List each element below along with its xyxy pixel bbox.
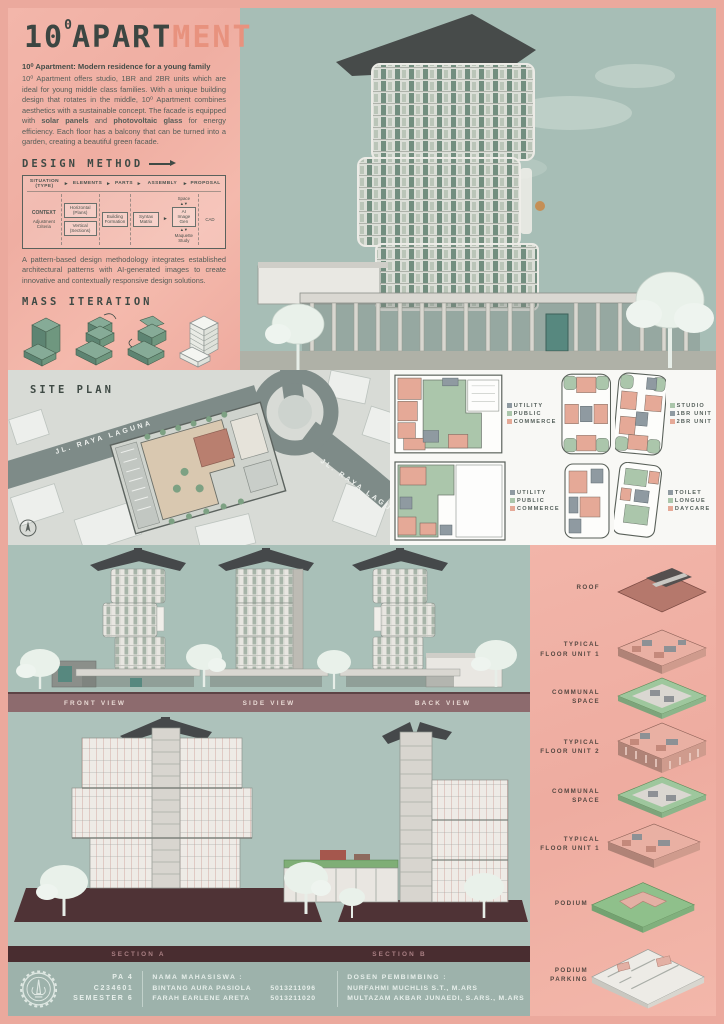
legend-item: DAYCARE <box>668 506 711 512</box>
legend-swatch <box>670 419 675 424</box>
elevations-panel: FRONT VIEW SIDE VIEW BACK VIEW <box>8 545 530 712</box>
its-logo <box>20 969 57 1009</box>
legend-item: UTILITY <box>507 403 557 409</box>
title-dark-part: APART <box>72 20 172 55</box>
legend-item: COMMERCE <box>507 419 557 425</box>
course-code: C234601 <box>66 984 133 995</box>
flow-context: CONTEXT <box>29 210 59 216</box>
title-accent-part: MENT <box>172 20 252 55</box>
flow-header-proposal: PROPOSAL <box>190 181 221 186</box>
legend-swatch <box>507 403 512 408</box>
flow-vertical: Vertical (Sections) <box>64 221 97 236</box>
section-label-a: SECTION A <box>8 946 269 962</box>
legend-swatch <box>670 411 675 416</box>
advisors-heading: DOSEN PEMBIMBING : <box>347 973 530 984</box>
legend-zoning-2: UTILITY PUBLIC COMMERCE <box>510 490 560 512</box>
axon-row-tfu1: TYPICAL FLOOR UNIT 1 <box>536 625 712 674</box>
legend-item: UTILITY <box>510 490 560 496</box>
mass-iteration-diagrams <box>22 313 224 370</box>
arrow-icon <box>149 163 171 165</box>
presentation-board: 100APARTMENT <box>0 0 724 1024</box>
floor-plans-panel: UTILITY PUBLIC COMMERCE <box>390 370 716 545</box>
student-row: FARAH EARLENE ARETA 5013211020 <box>152 994 328 1005</box>
intro-panel: 10⁰ Apartment: Modern residence for a yo… <box>8 8 240 370</box>
flow-adjustment: Adjustment Criteria <box>29 219 59 229</box>
legend-item: LONGUE <box>668 498 711 504</box>
axon-roof-illustration <box>612 560 712 616</box>
page-title: 100APARTMENT <box>24 18 253 55</box>
axon-row-roof: ROOF <box>536 551 712 625</box>
title-degree: 0 <box>64 18 72 33</box>
mass-iteration-heading: MASS ITERATION <box>22 296 226 308</box>
elevation-label-side: SIDE VIEW <box>182 694 356 712</box>
student-name: FARAH EARLENE ARETA <box>152 994 270 1005</box>
arrow-right-icon: ► <box>183 181 188 187</box>
exploded-axon-panel: ROOF TYPICAL FLOOR UNIT 1 COMMUNAL SPACE <box>530 545 716 1016</box>
legend-swatch <box>668 506 673 511</box>
elevation-drawings <box>8 545 530 694</box>
student-row: BINTANG AURA PASIOLA 5013211096 <box>152 984 328 995</box>
footer-bar: PA 4 C234601 SEMESTER 6 NAMA MAHASISWA :… <box>8 962 530 1016</box>
course-name: PA 4 <box>66 973 133 984</box>
section-drawings <box>8 712 530 946</box>
advisors-block: DOSEN PEMBIMBING : NURFAHMI MUCHLIS S.T.… <box>347 973 530 1005</box>
flow-header-assembly: ASSEMBLY <box>144 181 181 186</box>
flow-building-formation: Building Formation <box>102 212 129 227</box>
axon-row-parking: PODIUM PARKING <box>536 939 712 1012</box>
design-method-heading: DESIGN METHOD <box>22 158 226 170</box>
floor-plan-podium-1 <box>394 373 503 455</box>
legend-item: STUDIO <box>670 403 712 409</box>
site-plan-map: JL. RAYA LAGUNA JL. RAYA LAGUNA <box>8 370 390 545</box>
floor-plan-unit-2 <box>614 462 664 540</box>
intro-bold-solar: solar panels <box>41 116 88 125</box>
student-id: 5013211020 <box>270 994 328 1005</box>
legend-swatch <box>510 506 515 511</box>
legend-units: STUDIO 1BR UNIT 2BR UNIT <box>670 403 712 425</box>
axon-row-podium: PODIUM <box>536 869 712 939</box>
section-label-bar: SECTION A SECTION B <box>8 946 530 962</box>
student-name: BINTANG AURA PASIOLA <box>152 984 270 995</box>
advisor-name: MULTAZAM AKBAR JUNAEDI, S.ARS., M.ARS <box>347 994 530 1005</box>
axon-podium-illustration <box>588 873 698 935</box>
site-plan-heading: SITE PLAN <box>30 384 114 396</box>
axon-row-communal2: COMMUNAL SPACE <box>536 773 712 820</box>
legend-swatch <box>507 411 512 416</box>
render-illustration <box>240 8 716 370</box>
legend-amenity: TOILET LONGUE DAYCARE <box>668 490 711 512</box>
title-number: 10 <box>24 20 64 55</box>
student-id: 5013211096 <box>270 984 328 995</box>
design-method-flowchart: SITUATION (TYPE)► ELEMENTS► PARTS► ASSEM… <box>22 175 226 249</box>
arrow-up-down-icon: ▲▼ <box>180 202 188 206</box>
elevation-label-back: BACK VIEW <box>356 694 530 712</box>
legend-swatch <box>670 403 675 408</box>
arrow-right-icon: ► <box>64 181 69 187</box>
section-label-b: SECTION B <box>269 946 530 962</box>
floor-plan-tower-1 <box>561 372 611 456</box>
axon-row-tfu2: TYPICAL FLOOR UNIT 2 <box>536 721 712 773</box>
intro-seg2: and <box>89 116 114 125</box>
divider <box>142 971 143 1007</box>
intro-bold-glass: photovoltaic glass <box>113 116 182 125</box>
legend-swatch <box>507 419 512 424</box>
divider <box>337 971 338 1007</box>
building-render <box>240 8 716 370</box>
flow-horizontal: Horizontal (Plans) <box>64 203 97 218</box>
sections-panel: SECTION A SECTION B <box>8 712 530 962</box>
axon-communal-illustration <box>612 674 712 720</box>
elevation-label-front: FRONT VIEW <box>8 694 182 712</box>
floor-plan-podium-2 <box>394 461 506 541</box>
arrow-up-down-icon: ▲▼ <box>180 228 188 232</box>
intro-paragraph: 10⁰ Apartment offers studio, 1BR and 2BR… <box>22 74 226 148</box>
legend-item: PUBLIC <box>507 411 557 417</box>
axon-row-communal1: COMMUNAL SPACE <box>536 674 712 721</box>
students-block: NAMA MAHASISWA : BINTANG AURA PASIOLA 50… <box>152 973 328 1005</box>
axon-floor-illustration <box>612 721 712 773</box>
legend-swatch <box>668 490 673 495</box>
flow-cad: CAD <box>201 217 219 222</box>
site-plan-panel: SITE PLAN JL. RAYA LAGUNA JL. RAYA LAGUN… <box>8 370 390 545</box>
flowchart-headers: SITUATION (TYPE)► ELEMENTS► PARTS► ASSEM… <box>27 179 221 192</box>
legend-item: 1BR UNIT <box>670 411 712 417</box>
axon-row-tfu1b: TYPICAL FLOOR UNIT 1 <box>536 820 712 869</box>
legend-swatch <box>510 490 515 495</box>
legend-item: PUBLIC <box>510 498 560 504</box>
floor-plan-unit-1 <box>564 463 610 539</box>
course-info: PA 4 C234601 SEMESTER 6 <box>66 973 133 1005</box>
flow-header-parts: PARTS <box>113 181 134 186</box>
intro-heading: 10⁰ Apartment: Modern residence for a yo… <box>22 62 226 71</box>
students-heading: NAMA MAHASISWA : <box>152 973 328 984</box>
flow-header-situation: SITUATION (TYPE) <box>27 179 62 189</box>
flow-header-elements: ELEMENTS <box>71 181 104 186</box>
flow-space: Space <box>178 196 190 201</box>
semester: SEMESTER 6 <box>66 994 133 1005</box>
elevation-label-bar: FRONT VIEW SIDE VIEW BACK VIEW <box>8 692 530 712</box>
axon-floor-illustration <box>602 820 706 868</box>
axon-parking-illustration <box>588 941 708 1009</box>
legend-item: COMMERCE <box>510 506 560 512</box>
legend-swatch <box>510 498 515 503</box>
legend-swatch <box>668 498 673 503</box>
legend-item: TOILET <box>668 490 711 496</box>
legend-item: 2BR UNIT <box>670 419 712 425</box>
arrow-right-icon: ► <box>163 216 168 222</box>
flow-syntax-matrix: Syntax Matrix <box>133 212 159 227</box>
flow-ai-image-gen: AI Image Gen <box>172 207 196 227</box>
arrow-right-icon: ► <box>137 181 142 187</box>
axon-floor-illustration <box>612 626 712 674</box>
advisor-name: NURFAHMI MUCHLIS S.T., M.ARS <box>347 984 530 995</box>
axon-communal-illustration <box>612 773 712 819</box>
flow-maquette-study: Maquette Study <box>172 233 196 243</box>
design-method-description: A pattern-based design methodology integ… <box>22 255 226 287</box>
arrow-right-icon: ► <box>106 181 111 187</box>
legend-zoning: UTILITY PUBLIC COMMERCE <box>507 403 557 425</box>
floor-plan-tower-2 <box>615 372 665 456</box>
